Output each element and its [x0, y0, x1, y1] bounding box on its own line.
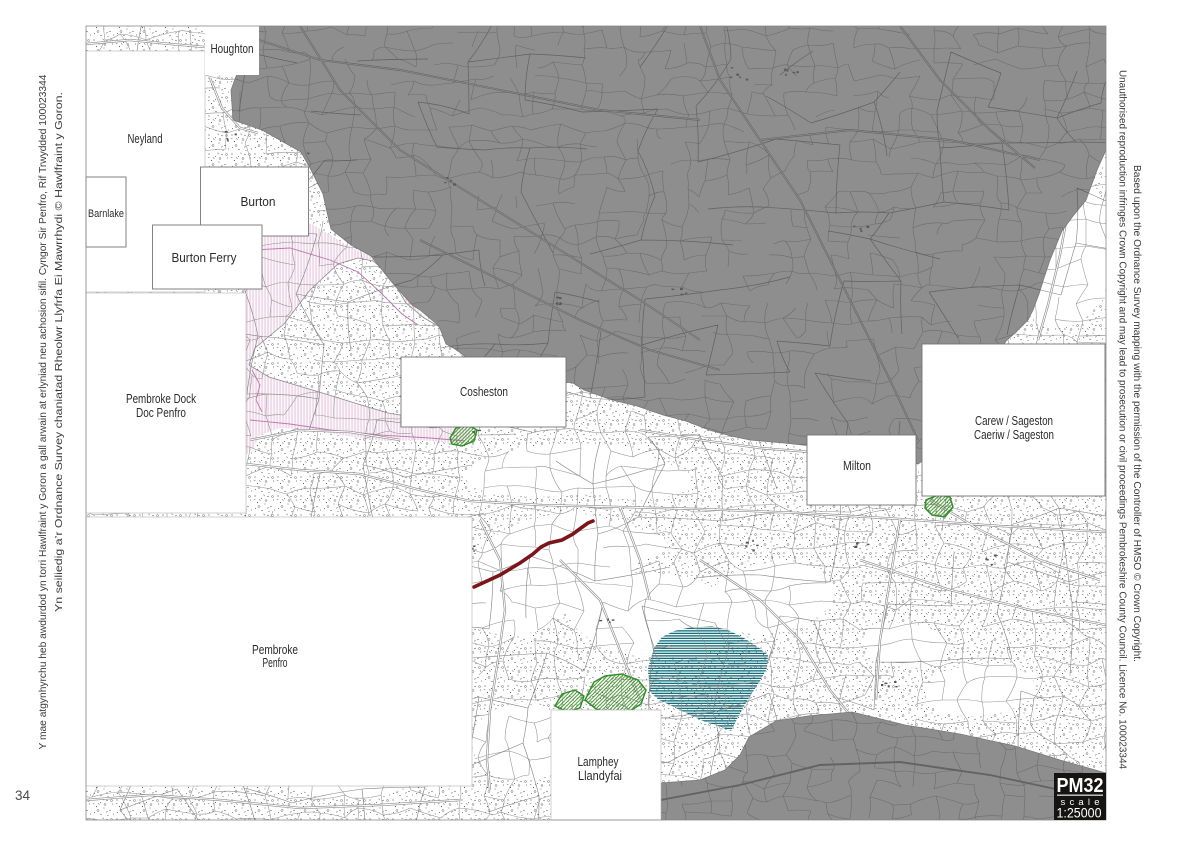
svg-text:Unauthorised reproduction infr: Unauthorised reproduction infringes Crow… [1117, 70, 1128, 769]
svg-text:Doc Penfro: Doc Penfro [136, 405, 186, 420]
svg-text:Lamphey: Lamphey [578, 754, 619, 769]
svg-text:Cosheston: Cosheston [460, 384, 508, 399]
svg-text:Burton Ferry: Burton Ferry [172, 250, 237, 265]
svg-text:Milton: Milton [843, 458, 871, 473]
svg-text:Pembroke Dock: Pembroke Dock [126, 391, 196, 406]
svg-text:Houghton: Houghton [211, 41, 254, 56]
svg-text:34: 34 [15, 788, 31, 803]
svg-text:PM32: PM32 [1057, 774, 1104, 797]
svg-text:Y mae atgynhyrchu heb awdurdod: Y mae atgynhyrchu heb awdurdod yn torri … [38, 74, 49, 749]
svg-text:Barnlake: Barnlake [88, 208, 124, 220]
svg-text:Based upon the Ordnance Survey: Based upon the Ordnance Survey mapping w… [1131, 165, 1142, 662]
svg-text:Caeriw / Sageston: Caeriw / Sageston [974, 427, 1054, 442]
svg-text:Yn seiliedig a’r Ordnance Surv: Yn seiliedig a’r Ordnance Survey chaniat… [54, 92, 65, 612]
svg-text:Burton: Burton [241, 194, 276, 209]
svg-text:Carew / Sageston: Carew / Sageston [975, 413, 1053, 428]
svg-text:Penfro: Penfro [263, 655, 288, 670]
svg-text:Llandyfai: Llandyfai [578, 768, 622, 783]
svg-text:Neyland: Neyland [128, 131, 163, 146]
svg-text:1:25000: 1:25000 [1057, 806, 1102, 821]
